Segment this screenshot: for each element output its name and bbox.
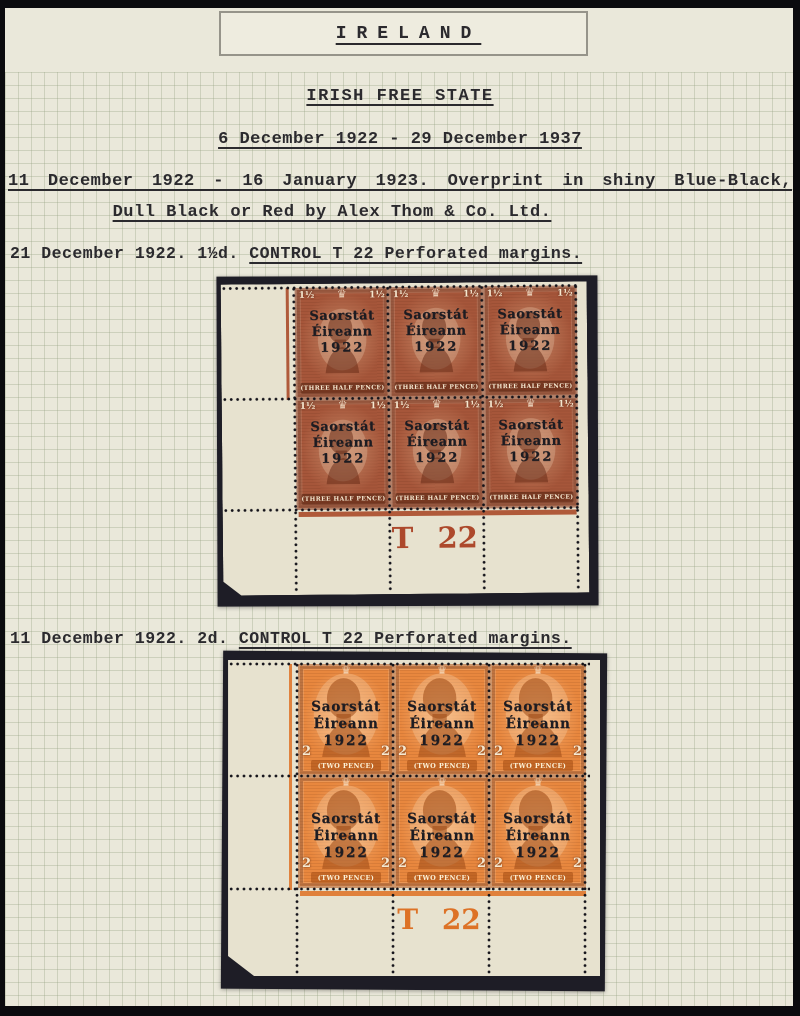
caption-block1-control: CONTROL T 22 Perforated margins. — [249, 244, 582, 263]
note-overprint-line2: Dull Black or Red by Alex Thom & Co. Ltd… — [0, 203, 664, 222]
caption-block1: 21 December 1922. 1½d. CONTROL T 22 Perf… — [10, 244, 582, 263]
overprint-line2: Éireann — [483, 323, 577, 340]
stamps-grid-1: ♛ 1½ 1½ Saorstát Éireann 1922 (THREE HAL… — [295, 286, 579, 510]
overprint-text: Saorstát Éireann 1922 — [389, 286, 484, 398]
jubilee-line-vertical — [286, 288, 290, 400]
overprint-text: Saorstát Éireann 1922 — [484, 397, 579, 509]
overprint-text: Saorstát Éireann 1922 — [394, 776, 490, 888]
overprint-line1: Saorstát — [298, 699, 394, 716]
overprint-line3: 1922 — [295, 340, 389, 357]
page-title: IRELAND — [326, 24, 482, 44]
control-number: T 22 — [388, 520, 482, 555]
overprint-text: Saorstát Éireann 1922 — [390, 397, 485, 509]
overprint-line3: 1922 — [389, 339, 483, 356]
stamp-three-halfpence: ♛ 1½ 1½ Saorstát Éireann 1922 (THREE HAL… — [296, 398, 391, 510]
overprint-line2: Éireann — [296, 435, 390, 452]
stamp-block-mount-1: ♛ 1½ 1½ Saorstát Éireann 1922 (THREE HAL… — [216, 275, 598, 606]
overprint-line2: Éireann — [394, 716, 490, 733]
overprint-line3: 1922 — [298, 733, 394, 750]
stamp-three-halfpence: ♛ 1½ 1½ Saorstát Éireann 1922 (THREE HAL… — [484, 397, 579, 509]
overprint-line3: 1922 — [298, 845, 394, 862]
overprint-text: Saorstát Éireann 1922 — [298, 776, 394, 888]
stamp-three-halfpence: ♛ 1½ 1½ Saorstát Éireann 1922 (THREE HAL… — [295, 287, 390, 399]
caption-block2-control: CONTROL T 22 Perforated margins. — [239, 629, 572, 648]
stamp-two-pence: ♛ 2 2 Saorstát Éireann 1922 (TWO PENCE) — [394, 776, 490, 888]
overprint-line3: 1922 — [483, 339, 577, 356]
stamp-three-halfpence: ♛ 1½ 1½ Saorstát Éireann 1922 (THREE HAL… — [389, 286, 484, 398]
overprint-line1: Saorstát — [483, 307, 577, 324]
stamp-two-pence: ♛ 2 2 Saorstát Éireann 1922 (TWO PENCE) — [298, 664, 394, 776]
stamp-three-halfpence: ♛ 1½ 1½ Saorstát Éireann 1922 (THREE HAL… — [483, 286, 578, 398]
overprint-line2: Éireann — [490, 828, 586, 845]
stamp-block-mount-2: ♛ 2 2 Saorstát Éireann 1922 (TWO PENCE) … — [221, 651, 607, 992]
title-box: IRELAND — [219, 11, 588, 56]
overprint-line3: 1922 — [490, 845, 586, 862]
note-overprint-line1: 11 December 1922 - 16 January 1923. Over… — [8, 172, 792, 191]
heading-irish-free-state: IRISH FREE STATE — [0, 87, 800, 106]
stamp-three-halfpence: ♛ 1½ 1½ Saorstát Éireann 1922 (THREE HAL… — [390, 397, 485, 509]
overprint-line1: Saorstát — [394, 811, 490, 828]
overprint-line2: Éireann — [298, 716, 394, 733]
overprint-line2: Éireann — [484, 433, 578, 450]
stamp-two-pence: ♛ 2 2 Saorstát Éireann 1922 (TWO PENCE) — [298, 776, 394, 888]
overprint-line1: Saorstát — [490, 811, 586, 828]
caption-block2: 11 December 1922. 2d. CONTROL T 22 Perfo… — [10, 629, 572, 648]
overprint-text: Saorstát Éireann 1922 — [394, 664, 490, 776]
stamp-sheet-1: ♛ 1½ 1½ Saorstát Éireann 1922 (THREE HAL… — [221, 281, 590, 595]
overprint-line2: Éireann — [298, 828, 394, 845]
jubilee-line-horizontal — [300, 891, 586, 896]
overprint-line2: Éireann — [394, 828, 490, 845]
stamps-grid-2: ♛ 2 2 Saorstát Éireann 1922 (TWO PENCE) … — [298, 664, 586, 888]
overprint-text: Saorstát Éireann 1922 — [295, 287, 390, 399]
overprint-line1: Saorstát — [484, 417, 578, 434]
overprint-line3: 1922 — [394, 845, 490, 862]
caption-block2-date: 11 December 1922. 2d. — [10, 629, 239, 648]
overprint-line1: Saorstát — [295, 308, 389, 325]
overprint-line1: Saorstát — [389, 307, 483, 324]
overprint-text: Saorstát Éireann 1922 — [490, 776, 586, 888]
overprint-text: Saorstát Éireann 1922 — [483, 286, 578, 398]
overprint-line1: Saorstát — [298, 811, 394, 828]
overprint-line1: Saorstát — [490, 699, 586, 716]
stamp-two-pence: ♛ 2 2 Saorstát Éireann 1922 (TWO PENCE) — [490, 776, 586, 888]
overprint-line2: Éireann — [390, 434, 484, 451]
overprint-line1: Saorstát — [296, 419, 390, 436]
overprint-line3: 1922 — [296, 451, 390, 468]
stamp-two-pence: ♛ 2 2 Saorstát Éireann 1922 (TWO PENCE) — [394, 664, 490, 776]
overprint-line3: 1922 — [484, 449, 578, 466]
heading-date-range: 6 December 1922 - 29 December 1937 — [0, 130, 800, 149]
overprint-line2: Éireann — [490, 716, 586, 733]
overprint-line1: Saorstát — [390, 418, 484, 435]
overprint-line1: Saorstát — [394, 699, 490, 716]
stamp-two-pence: ♛ 2 2 Saorstát Éireann 1922 (TWO PENCE) — [490, 664, 586, 776]
caption-block1-date: 21 December 1922. 1½d. — [10, 244, 249, 263]
overprint-text: Saorstát Éireann 1922 — [490, 664, 586, 776]
control-number: T 22 — [391, 903, 487, 936]
overprint-line3: 1922 — [394, 733, 490, 750]
overprint-text: Saorstát Éireann 1922 — [296, 398, 391, 510]
overprint-line3: 1922 — [390, 450, 484, 467]
overprint-line3: 1922 — [490, 733, 586, 750]
overprint-line2: Éireann — [295, 324, 389, 341]
overprint-line2: Éireann — [389, 323, 483, 340]
overprint-text: Saorstát Éireann 1922 — [298, 664, 394, 776]
stamp-sheet-2: ♛ 2 2 Saorstát Éireann 1922 (TWO PENCE) … — [228, 660, 600, 976]
